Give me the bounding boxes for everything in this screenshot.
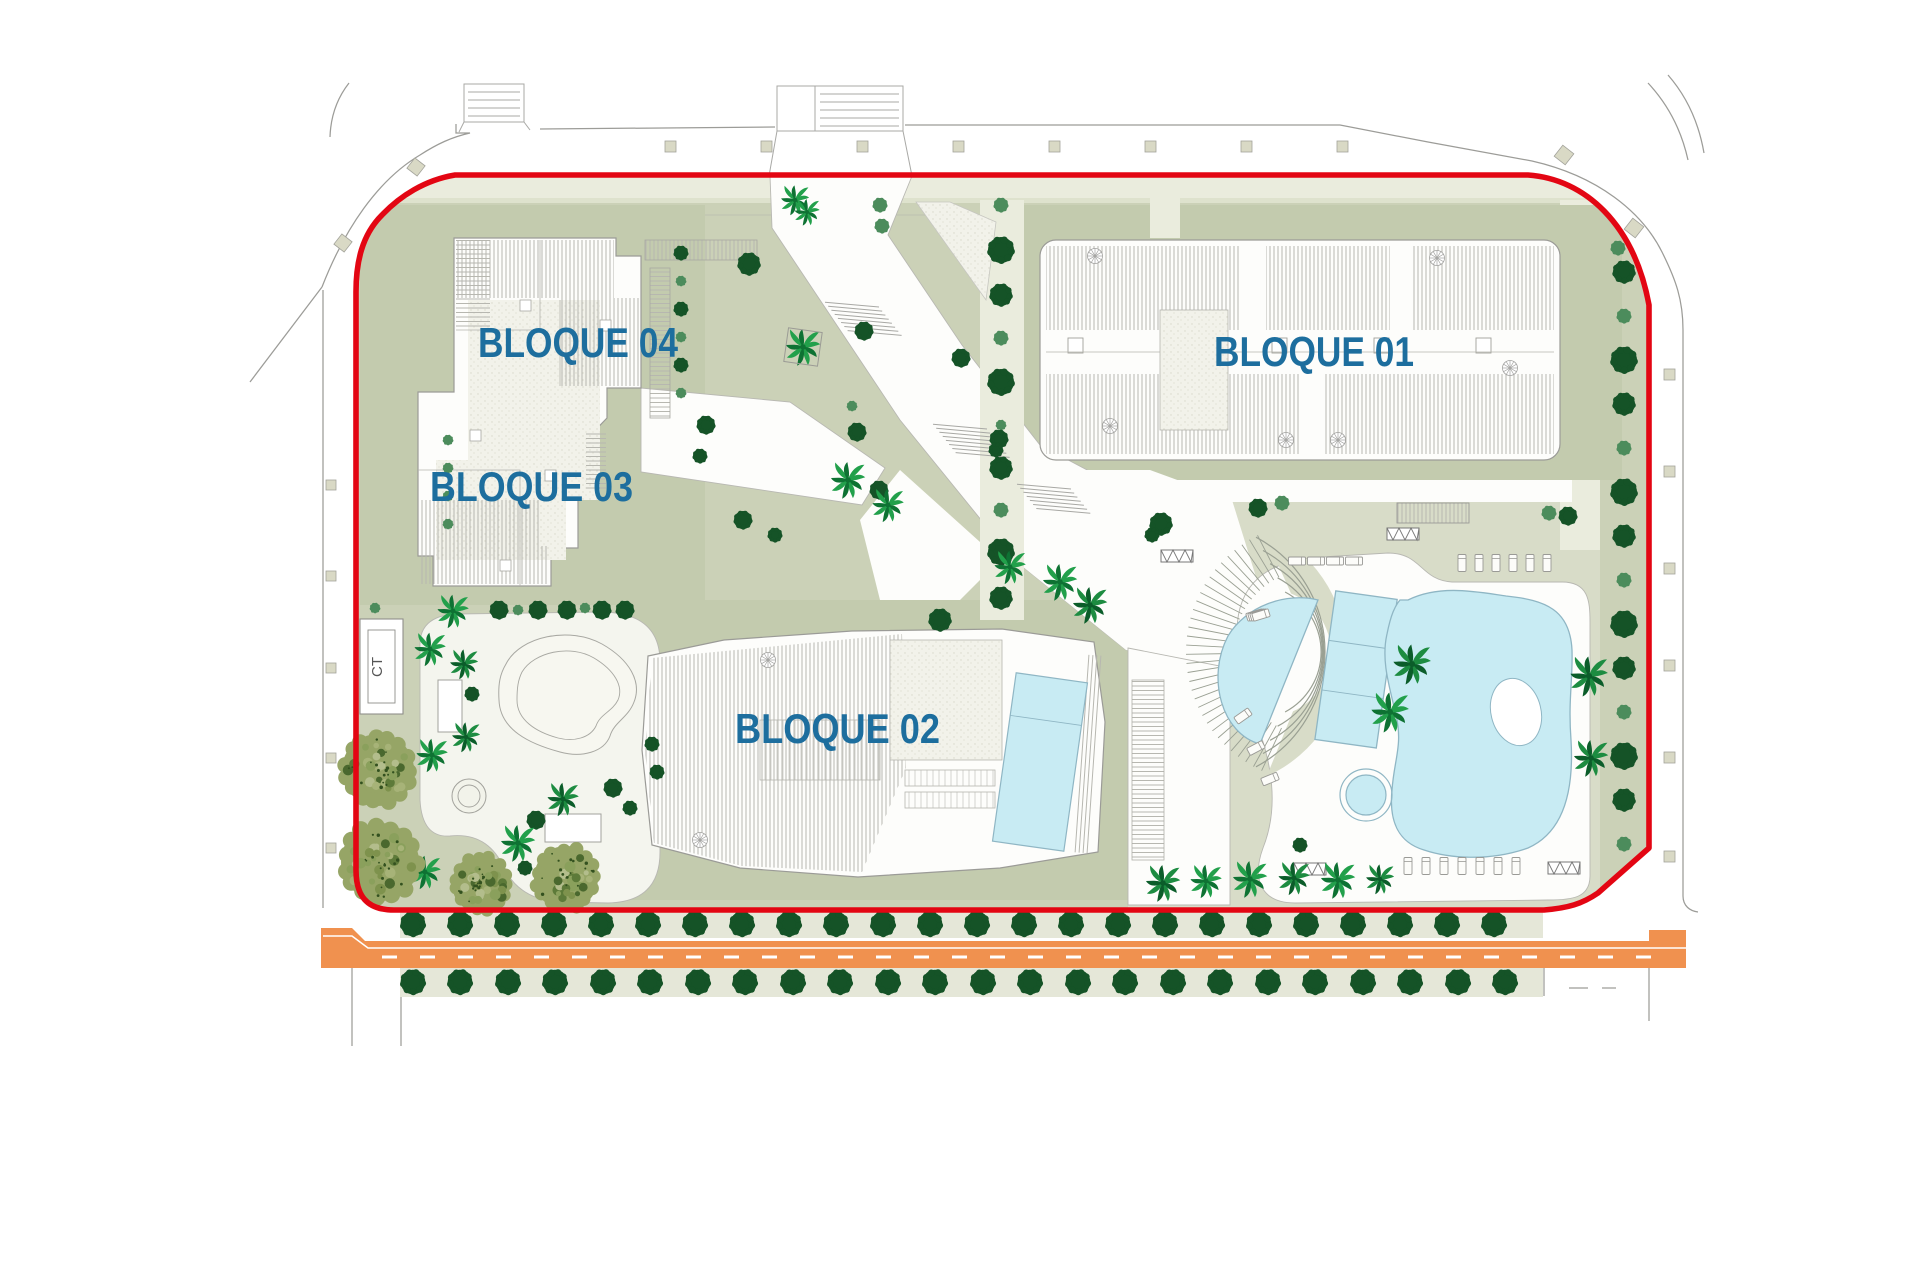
- svg-text:BLOQUE 01: BLOQUE 01: [1214, 328, 1414, 375]
- svg-text:CT: CT: [369, 657, 386, 677]
- svg-text:BLOQUE 02: BLOQUE 02: [735, 705, 940, 752]
- svg-text:BLOQUE 03: BLOQUE 03: [430, 463, 633, 510]
- svg-text:BLOQUE 04: BLOQUE 04: [478, 319, 679, 366]
